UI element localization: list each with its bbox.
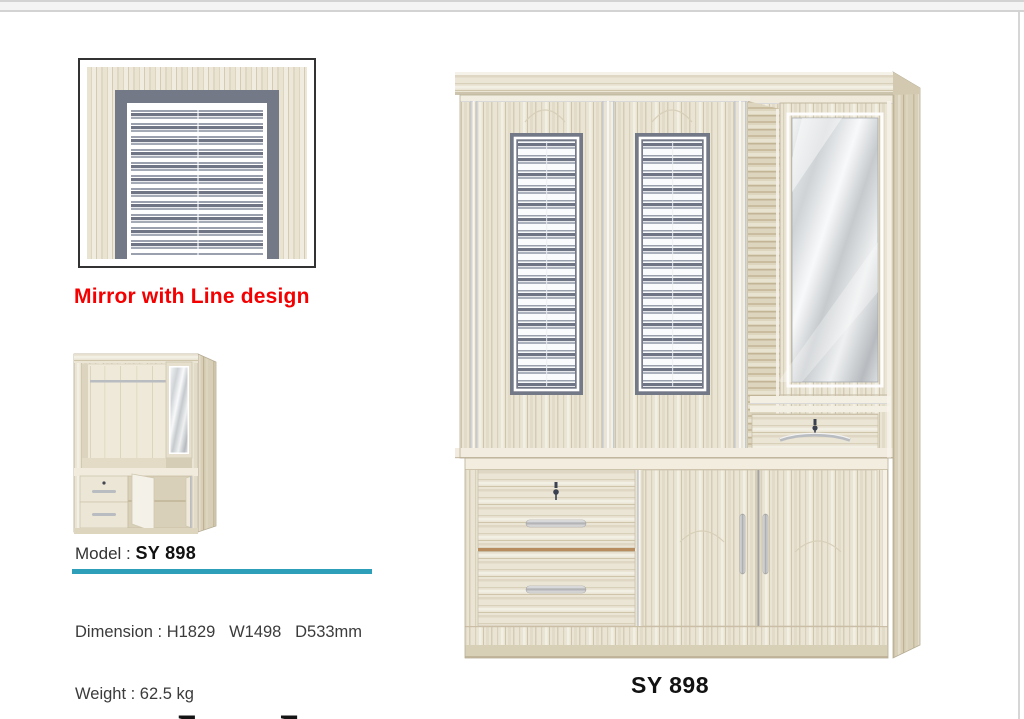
model-line: Model : SY 898 <box>75 543 372 564</box>
wardrobe-main-image <box>450 62 925 662</box>
openview-plinth <box>74 528 198 534</box>
openview-side-panel <box>198 354 216 532</box>
right-door-line-panel <box>635 133 710 395</box>
chest-drawer-1 <box>478 470 635 548</box>
spec-block: Model : SY 898 Dimension : H1829 W1498 D… <box>75 543 372 719</box>
cabinet-side-panel <box>893 72 920 658</box>
chest-drawer-2 <box>478 552 635 627</box>
page-right-border <box>1018 12 1020 719</box>
angled-side-piece <box>748 101 780 458</box>
model-value: SY 898 <box>135 543 196 563</box>
openview-mirror <box>166 362 192 468</box>
drawer-handle <box>526 520 586 527</box>
model-caption: SY 898 <box>455 672 885 699</box>
wardrobe-open-view-image <box>70 350 222 540</box>
model-underline <box>72 569 372 574</box>
drawer-handle <box>526 586 586 593</box>
catalog-page: Mirror with Line design <box>0 0 1024 719</box>
chest-doors <box>643 470 877 626</box>
cabinet-cornice <box>455 72 920 95</box>
door-handle <box>763 514 768 574</box>
mirror-line-design-closeup <box>87 67 307 259</box>
model-label: Model : <box>75 544 135 563</box>
left-door-line-panel <box>510 133 583 395</box>
category-title: Wardrobe <box>0 696 366 719</box>
mid-rail <box>455 448 893 458</box>
dimension-line: Dimension : H1829 W1498 D533mm <box>75 622 372 643</box>
openview-hanging-rail <box>90 380 168 383</box>
openview-drawers <box>80 476 128 528</box>
lower-chest <box>465 458 888 658</box>
door-handle <box>740 514 745 574</box>
page-top-border <box>0 0 1024 12</box>
dressing-mirror <box>778 103 890 395</box>
mirror-detail-inset <box>78 58 316 268</box>
closeup-center-seam <box>197 107 199 256</box>
dressing-column <box>748 95 893 458</box>
openview-open-doors <box>128 474 192 532</box>
drawer-divider <box>478 548 635 552</box>
detail-callout-label: Mirror with Line design <box>74 285 394 309</box>
